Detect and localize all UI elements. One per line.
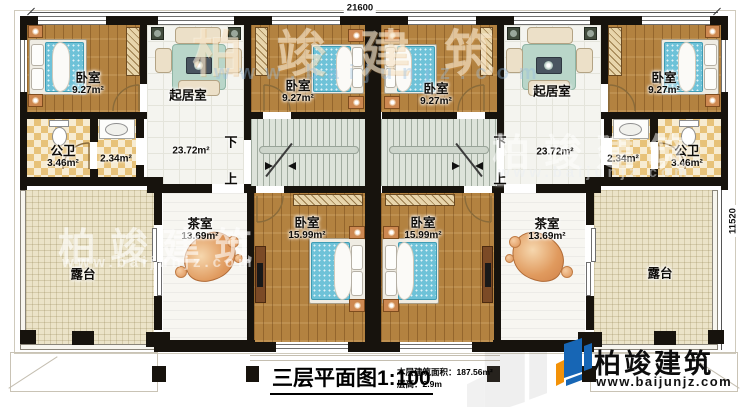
pillow: [352, 68, 363, 88]
pillar: [72, 331, 94, 345]
pillow: [31, 68, 44, 90]
bed-blanket: [396, 242, 414, 300]
tea-stool: [505, 254, 514, 263]
wall-segment: [650, 119, 658, 142]
wall-segment: [604, 165, 612, 177]
window: [514, 16, 590, 25]
wardrobe: [480, 27, 493, 76]
window: [642, 16, 710, 25]
window: [721, 40, 728, 92]
wall-segment: [485, 112, 504, 119]
stair-direction-arrow: [452, 162, 460, 170]
wall-segment: [476, 16, 514, 25]
dimension-top-value: 21600: [344, 3, 376, 14]
wall-segment: [291, 112, 366, 119]
window: [158, 16, 234, 25]
wall-party: [365, 16, 381, 352]
pillow: [385, 271, 397, 296]
balcony-post: [246, 366, 259, 382]
wall-segment: [348, 342, 400, 352]
tea-stool: [509, 236, 521, 248]
brand-website: www.baijunjz.com: [596, 374, 732, 389]
plan-title-text: 三层平面图: [272, 367, 377, 390]
room-area-wash-right: 2.34m²: [607, 154, 639, 165]
wall-segment: [20, 112, 147, 119]
plant-stand: [228, 27, 241, 40]
tea-stool: [234, 254, 243, 263]
bed-blanket: [678, 42, 696, 92]
table-decor: [544, 61, 553, 70]
stair-handrail: [259, 146, 359, 154]
bed-blanket: [336, 46, 353, 92]
nightstand: [383, 299, 399, 312]
window: [38, 16, 106, 25]
wall-segment: [601, 25, 608, 84]
wardrobe: [293, 194, 363, 206]
nightstand: [348, 29, 364, 42]
room-label-bedroom-tl: 卧室 9.27m²: [72, 72, 104, 96]
terrace-parapet: [712, 190, 718, 348]
door-arc: [112, 84, 140, 112]
wall-segment: [90, 169, 98, 177]
nightstand: [383, 226, 399, 239]
room-label-bath-left: 公卫 3.46m²: [47, 145, 79, 169]
wall-segment: [234, 16, 272, 25]
stair-up-label-right: 上: [493, 169, 506, 188]
wall-segment: [247, 193, 254, 350]
plant-stand: [584, 27, 597, 40]
wall-segment: [536, 184, 601, 193]
brand-logo-icon: [554, 336, 594, 390]
sliding-door: [586, 262, 591, 296]
room-label-bedroom-tr: 卧室 9.27m²: [648, 72, 680, 96]
window: [20, 40, 27, 92]
bed-blanket: [52, 42, 70, 92]
room-label-bedroom-bl: 卧室 15.99m²: [288, 217, 325, 241]
wardrobe: [255, 27, 268, 76]
wall-segment: [106, 16, 158, 25]
armchair: [155, 48, 172, 73]
plan-title-notes: 本层建筑面积：187.56m² 层高：2.9m: [397, 366, 493, 391]
tea-stool: [175, 266, 187, 278]
floor-plan-canvas: 卧室 9.27m² 卧室 9.27m² 卧室 9.27m² 卧室 9.27m² …: [0, 0, 750, 407]
wall-segment: [494, 193, 501, 350]
tv: [485, 263, 491, 287]
room-label-tea-left: 茶室 13.69m²: [181, 218, 218, 242]
room-area-living-right: 23.72m²: [536, 147, 573, 158]
wall-segment: [585, 177, 728, 186]
pillar: [493, 340, 510, 351]
wall-segment: [604, 119, 612, 138]
wall-segment: [590, 16, 642, 25]
pillar: [20, 330, 36, 344]
wall-segment: [284, 186, 366, 193]
stair-handrail: [389, 146, 489, 154]
lower-balcony-line: [250, 360, 500, 361]
door-arc: [457, 84, 485, 112]
room-label-terrace-left: 露台: [70, 268, 95, 281]
dimension-right-value: 11520: [728, 205, 739, 237]
sofa: [527, 27, 573, 44]
room-area-wash-left: 2.34m²: [100, 154, 132, 165]
nightstand: [348, 96, 364, 109]
armchair: [576, 48, 593, 73]
bed-blanket: [334, 242, 352, 300]
wardrobe: [126, 27, 140, 76]
window: [276, 344, 348, 351]
stair-direction-arrow: [475, 162, 483, 170]
door-arc: [256, 195, 284, 223]
room-label-bedroom-tmr: 卧室 9.27m²: [420, 83, 452, 107]
nightstand: [349, 226, 365, 239]
nightstand: [28, 25, 43, 38]
wall-segment: [382, 112, 457, 119]
tea-stool: [561, 266, 573, 278]
door-arc: [464, 195, 492, 223]
wall-segment: [721, 92, 728, 190]
stair-down-label-right: 下: [493, 132, 506, 151]
room-label-living-left: 起居室: [169, 89, 207, 102]
window: [272, 16, 340, 25]
door-arc: [608, 84, 636, 112]
lower-balcony-line: [250, 355, 500, 356]
pillow: [351, 271, 363, 296]
wall-segment: [497, 16, 504, 140]
wall-segment: [721, 16, 728, 40]
nightstand: [384, 96, 400, 109]
wall-segment: [382, 186, 464, 193]
sliding-door: [152, 228, 157, 262]
wall-segment: [244, 112, 263, 119]
wall-segment: [20, 177, 163, 186]
pillow: [351, 245, 363, 270]
floor-height-note: 层高：2.9m: [397, 378, 493, 390]
pillow: [31, 44, 44, 66]
wardrobe: [608, 27, 622, 76]
sliding-door: [157, 262, 162, 296]
tea-stool: [227, 236, 239, 248]
nightstand: [349, 299, 365, 312]
pillow: [704, 44, 717, 66]
wall-segment: [586, 193, 594, 225]
nightstand: [384, 29, 400, 42]
pillow: [704, 68, 717, 90]
stair-up-label-left: 上: [224, 169, 237, 188]
room-label-bedroom-br: 卧室 15.99m²: [404, 217, 441, 241]
room-label-tea-right: 茶室 13.69m²: [528, 218, 565, 242]
toilet-tank: [49, 120, 69, 127]
pillow: [385, 47, 396, 67]
wall-segment: [90, 119, 98, 142]
sink-basin: [105, 123, 128, 136]
room-label-bedroom-tml: 卧室 9.27m²: [282, 80, 314, 104]
room-label-living-right: 起居室: [533, 85, 571, 98]
wall-segment: [136, 119, 144, 138]
sliding-door: [591, 228, 596, 262]
armchair: [225, 48, 242, 73]
window: [400, 344, 472, 351]
wall-segment: [140, 25, 147, 84]
pillow: [385, 245, 397, 270]
balcony-post: [152, 366, 166, 382]
wall-segment: [20, 92, 27, 190]
room-area-living-left: 23.72m²: [172, 146, 209, 157]
wall-segment: [601, 112, 728, 119]
wardrobe: [385, 194, 455, 206]
pillar: [238, 340, 255, 351]
plant-stand: [151, 27, 164, 40]
bed-blanket: [395, 46, 412, 92]
wall-segment: [154, 193, 162, 225]
window: [408, 16, 476, 25]
table-decor: [194, 61, 203, 70]
nightstand: [705, 25, 720, 38]
wall-segment: [650, 169, 658, 177]
sink-basin: [619, 123, 642, 136]
stair-direction-arrow: [288, 162, 296, 170]
wall-segment: [20, 16, 27, 40]
wall-segment: [244, 16, 251, 140]
wall-segment: [154, 296, 162, 330]
armchair: [506, 48, 523, 73]
room-label-bath-right: 公卫 3.46m²: [671, 145, 703, 169]
wall-segment: [147, 184, 212, 193]
floor-area-note: 本层建筑面积：187.56m²: [397, 366, 493, 378]
stair-down-label-left: 下: [224, 132, 237, 151]
toilet-tank: [679, 120, 699, 127]
terrace-parapet: [20, 190, 26, 348]
pillar: [146, 332, 170, 347]
nightstand: [28, 94, 43, 107]
tv: [257, 263, 263, 287]
room-label-terrace-right: 露台: [647, 267, 672, 280]
plant-stand: [507, 27, 520, 40]
wall-segment: [244, 186, 256, 193]
wall-segment: [136, 165, 144, 177]
sofa: [175, 27, 221, 44]
pillow: [385, 68, 396, 88]
wall-segment: [586, 296, 594, 330]
nightstand: [705, 94, 720, 107]
pillow: [352, 47, 363, 67]
stair-direction-arrow: [265, 162, 273, 170]
